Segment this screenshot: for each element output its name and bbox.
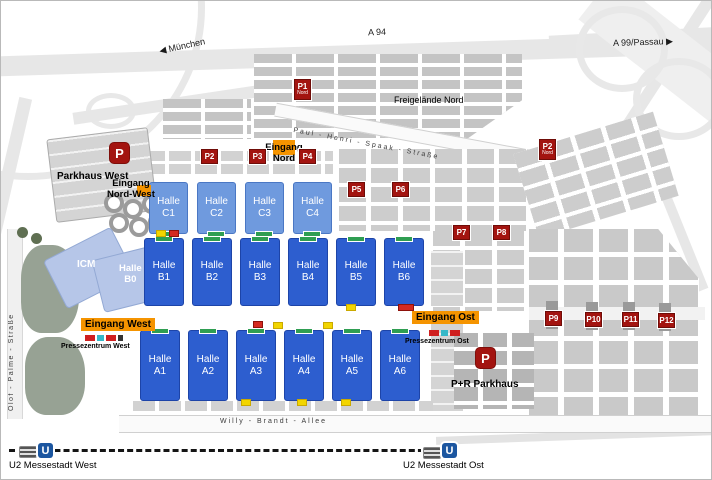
parking-lot-p2-nord: [513, 112, 678, 239]
halle-b4-line1: Halle: [297, 260, 320, 272]
halle-a5-line2: A5: [346, 366, 358, 378]
halle-b1-line2: B1: [158, 272, 170, 284]
press-logo-red: [85, 335, 95, 341]
parking-p6-marker[interactable]: P6: [392, 182, 409, 197]
icm-label: ICM: [77, 259, 95, 270]
eingang-west-label[interactable]: Eingang West: [81, 318, 155, 331]
halle-b5-line1: Halle: [345, 260, 368, 272]
halle-a2-line2: A2: [202, 366, 214, 378]
parking-lot-north: [339, 149, 527, 231]
halle-b6-line2: B6: [398, 272, 410, 284]
parking-p1-marker[interactable]: P1 Nord: [294, 79, 311, 100]
parking-p8-marker[interactable]: P8: [493, 225, 510, 240]
parking-p2-marker[interactable]: P2: [201, 149, 218, 164]
arrow-right-icon: ▶: [666, 36, 673, 46]
halle-a6-line2: A6: [394, 366, 406, 378]
halle-c2[interactable]: HalleC2: [197, 182, 236, 234]
halle-a4[interactable]: HalleA4: [284, 330, 324, 401]
press-logo-cyan: [97, 335, 104, 341]
label-a99: A 99/Passau ▶: [613, 36, 673, 49]
halle-c3-line1: Halle: [253, 196, 276, 208]
ubahn-west-icon[interactable]: U: [38, 443, 53, 458]
halle-b1-line1: Halle: [153, 260, 176, 272]
halle-a1[interactable]: HalleA1: [140, 330, 180, 401]
halle-c4-line2: C4: [306, 208, 319, 220]
willy-brandt-label: Willy - Brandt - Allee: [220, 418, 327, 425]
decor-tick: [169, 230, 179, 237]
press-logo-red: [429, 330, 439, 336]
decor-tick: [156, 230, 166, 237]
decor-tick: [341, 399, 351, 406]
halle-b4[interactable]: HalleB4: [288, 238, 328, 306]
parking-p2-nord-marker[interactable]: P2 Nord: [539, 139, 556, 160]
eingang-ost-label[interactable]: Eingang Ost: [412, 311, 479, 324]
decor-tick: [346, 304, 356, 311]
round-structure: [129, 217, 149, 237]
tree: [17, 227, 28, 238]
willy-brandt-road: [119, 415, 712, 433]
parking-p4-marker[interactable]: P4: [299, 149, 316, 164]
decor-tick: [398, 304, 414, 311]
train-icon: [19, 446, 37, 458]
halle-b0-line2: B0: [119, 274, 142, 285]
press-logo-dark: [118, 335, 123, 341]
south-service-strip: [133, 401, 433, 414]
parking-p9-marker[interactable]: P9: [545, 311, 562, 326]
p2-nord-sub: Nord: [542, 150, 553, 157]
arrow-left-icon: ◀: [158, 45, 167, 56]
halle-a4-line2: A4: [298, 366, 310, 378]
a99-text: A 99/Passau: [613, 36, 664, 48]
parking-p3-marker[interactable]: P3: [249, 149, 266, 164]
olof-palme-label: Olof - Palme - Straße: [8, 241, 15, 411]
halle-c2-line2: C2: [210, 208, 223, 220]
halle-a3-line1: Halle: [245, 354, 268, 366]
freigelaende-west-blocks: [163, 99, 251, 139]
halle-b0-line1: Halle: [119, 263, 142, 274]
halle-a1-line2: A1: [154, 366, 166, 378]
pr-parkhaus-label[interactable]: P+R Parkhaus: [451, 379, 519, 390]
halle-a2[interactable]: HalleA2: [188, 330, 228, 401]
eingang-nord-west-label[interactable]: Eingang Nord-West: [107, 178, 155, 200]
halle-c1-line2: C1: [162, 208, 175, 220]
halle-c2-line1: Halle: [205, 196, 228, 208]
halle-b0-label: Halle B0: [119, 263, 142, 285]
messe-muenchen-site-map: ◀ München A 94 A 99/Passau ▶ Freigelände…: [0, 0, 712, 480]
halle-b3-line1: Halle: [249, 260, 272, 272]
parking-p5-marker[interactable]: P5: [348, 182, 365, 197]
decor-tick: [297, 399, 307, 406]
halle-c4[interactable]: HalleC4: [293, 182, 332, 234]
parkhaus-west-p-icon[interactable]: P: [109, 142, 130, 164]
press-logo-red: [450, 330, 460, 336]
halle-a1-line1: Halle: [149, 354, 172, 366]
halle-a2-line1: Halle: [197, 354, 220, 366]
eingang-nord-west-line1: Eingang: [107, 178, 155, 189]
train-icon: [423, 447, 441, 459]
halle-c3-line2: C3: [258, 208, 271, 220]
halle-a6-line1: Halle: [389, 354, 412, 366]
halle-a3[interactable]: HalleA3: [236, 330, 276, 401]
decor-tick: [253, 321, 263, 328]
halle-c1-line1: Halle: [157, 196, 180, 208]
halle-c4-line1: Halle: [301, 196, 324, 208]
halle-b1[interactable]: HalleB1: [144, 238, 184, 306]
decor-tick: [273, 322, 283, 329]
u2-messestadt-west-label[interactable]: U2 Messestadt West: [9, 460, 96, 471]
halle-a5[interactable]: HalleA5: [332, 330, 372, 401]
halle-b2-line2: B2: [206, 272, 218, 284]
parking-p11-marker[interactable]: P11: [622, 312, 639, 327]
halle-b2-line1: Halle: [201, 260, 224, 272]
halle-b6-line1: Halle: [393, 260, 416, 272]
eingang-nord-west-line2: Nord-West: [107, 189, 155, 200]
halle-b5-line2: B5: [350, 272, 362, 284]
pressezentrum-ost-logos: [429, 330, 460, 336]
pressezentrum-ost-label[interactable]: Pressezentrum Ost: [405, 338, 469, 345]
pressezentrum-west-logos: [85, 335, 123, 341]
halle-a5-line1: Halle: [341, 354, 364, 366]
u2-messestadt-ost-label[interactable]: U2 Messestadt Ost: [403, 460, 484, 471]
u2-line: [9, 449, 433, 452]
freigelaende-nord-label: Freigelände Nord: [394, 95, 464, 105]
parking-p7-marker[interactable]: P7: [453, 225, 470, 240]
pressezentrum-west-label[interactable]: Pressezentrum West: [61, 343, 130, 350]
decor-tick: [241, 399, 251, 406]
label-a94: A 94: [368, 27, 386, 38]
tree: [31, 233, 42, 244]
parking-p10-marker[interactable]: P10: [585, 312, 602, 327]
east-service-building: [431, 251, 463, 306]
halle-c3[interactable]: HalleC3: [245, 182, 284, 234]
p2-nord-label: P2: [543, 143, 553, 150]
parking-p12-marker[interactable]: P12: [658, 313, 675, 328]
halle-b5[interactable]: HalleB5: [336, 238, 376, 306]
ubahn-ost-icon[interactable]: U: [442, 443, 457, 458]
halle-a4-line1: Halle: [293, 354, 316, 366]
halle-a3-line2: A3: [250, 366, 262, 378]
decor-tick: [323, 322, 333, 329]
p1-sub: Nord: [297, 90, 308, 97]
press-logo-red: [106, 335, 116, 341]
p1-label: P1: [298, 83, 308, 90]
halle-b4-line2: B4: [302, 272, 314, 284]
pr-parkhaus-p-icon[interactable]: P: [475, 347, 496, 369]
press-logo-cyan: [441, 330, 448, 336]
halle-b6[interactable]: HalleB6: [384, 238, 424, 306]
halle-b3[interactable]: HalleB3: [240, 238, 280, 306]
halle-b2[interactable]: HalleB2: [192, 238, 232, 306]
halle-b3-line2: B3: [254, 272, 266, 284]
